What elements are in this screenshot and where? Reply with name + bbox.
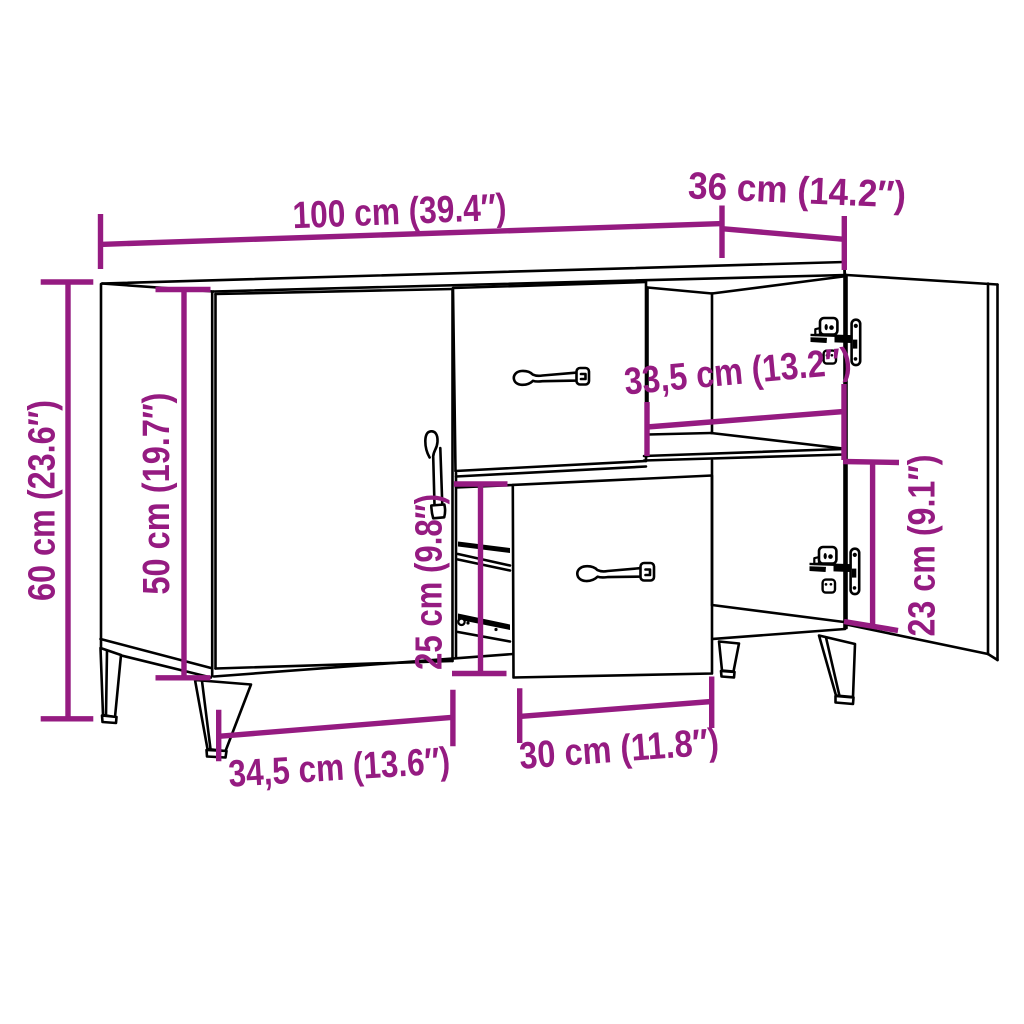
svg-text:25 cm (9.8″): 25 cm (9.8″): [409, 494, 451, 670]
svg-text:100 cm (39.4″): 100 cm (39.4″): [292, 187, 508, 238]
svg-text:60 cm (23.6″): 60 cm (23.6″): [22, 400, 64, 601]
svg-text:50 cm (19.7″): 50 cm (19.7″): [136, 393, 178, 595]
svg-text:23 cm (9.1″): 23 cm (9.1″): [902, 455, 944, 637]
